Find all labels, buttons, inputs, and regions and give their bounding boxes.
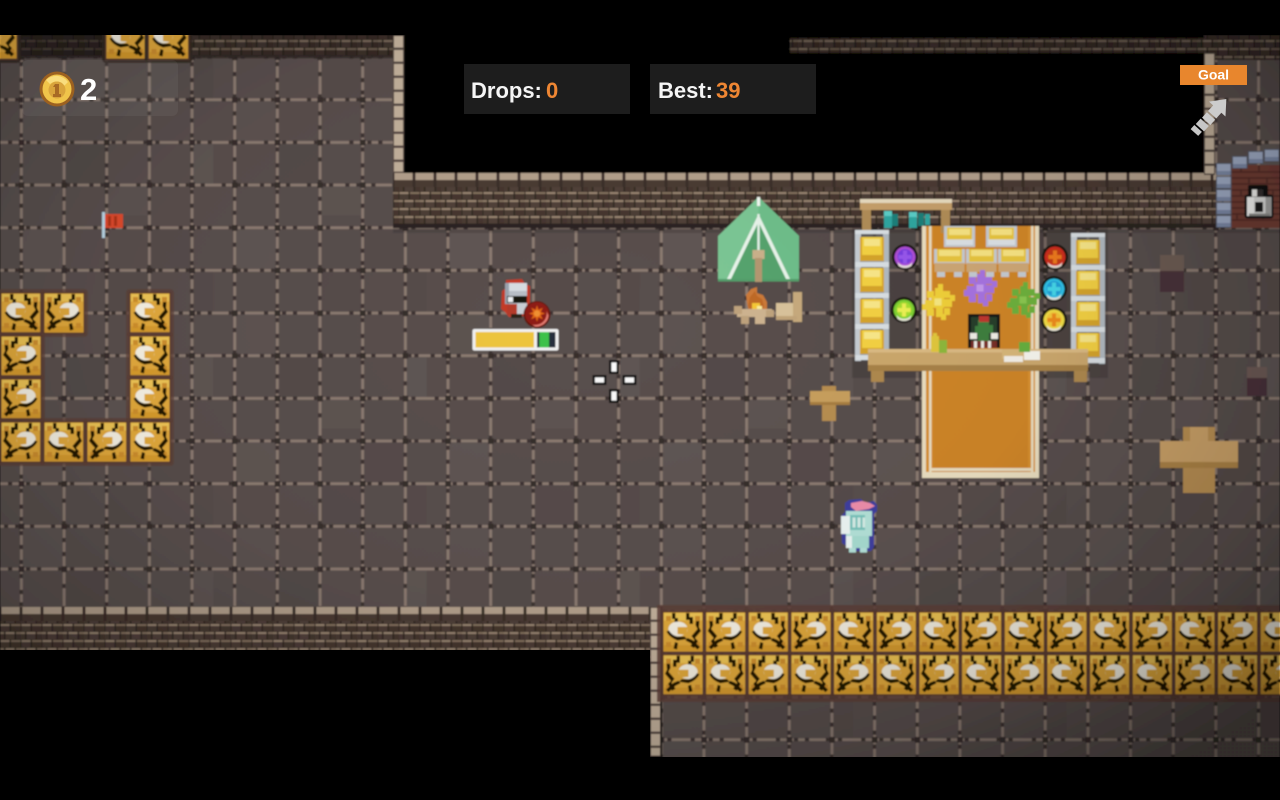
svg-text:2: 2 <box>80 72 97 107</box>
svg-text:0: 0 <box>546 78 558 103</box>
svg-text:Goal: Goal <box>1198 67 1229 83</box>
svg-text:Best:: Best: <box>658 78 713 103</box>
svg-text:Drops:: Drops: <box>471 78 542 103</box>
svg-text:39: 39 <box>716 78 740 103</box>
